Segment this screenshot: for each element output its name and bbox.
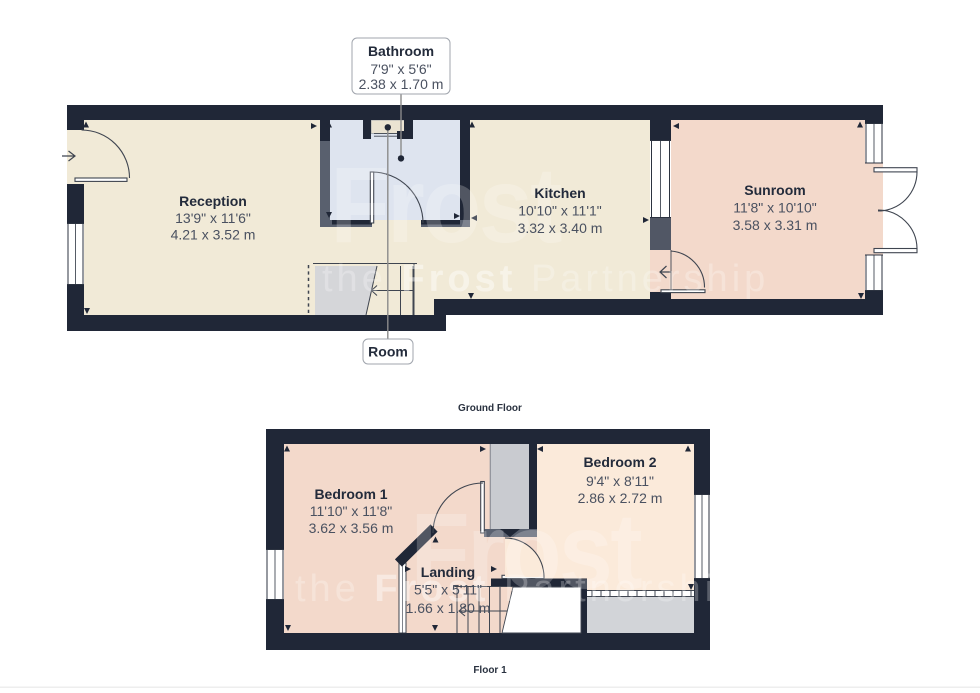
- svg-text:Kitchen: Kitchen: [534, 185, 585, 201]
- svg-text:1.66 x 1.80 m: 1.66 x 1.80 m: [406, 600, 491, 616]
- svg-text:4.21 x 3.52 m: 4.21 x 3.52 m: [171, 227, 256, 243]
- svg-text:7'9" x 5'6": 7'9" x 5'6": [370, 61, 431, 77]
- svg-text:Floor 1: Floor 1: [473, 665, 507, 676]
- svg-text:11'10" x 11'8": 11'10" x 11'8": [310, 503, 393, 519]
- svg-text:Bathroom: Bathroom: [368, 43, 434, 59]
- svg-text:5'5" x 5'11": 5'5" x 5'11": [414, 582, 482, 598]
- svg-text:Landing: Landing: [421, 564, 475, 580]
- svg-text:2.86 x 2.72 m: 2.86 x 2.72 m: [578, 490, 663, 506]
- svg-text:Bedroom 1: Bedroom 1: [314, 486, 387, 502]
- svg-text:9'4" x 8'11": 9'4" x 8'11": [586, 473, 654, 489]
- svg-text:11'8" x 10'10": 11'8" x 10'10": [733, 200, 817, 216]
- svg-text:3.58 x 3.31 m: 3.58 x 3.31 m: [733, 217, 818, 233]
- svg-text:Room: Room: [368, 344, 408, 360]
- svg-text:Sunroom: Sunroom: [744, 182, 805, 198]
- svg-text:3.32 x 3.40 m: 3.32 x 3.40 m: [518, 220, 603, 236]
- svg-text:Bedroom 2: Bedroom 2: [583, 454, 656, 470]
- svg-text:Ground Floor: Ground Floor: [458, 403, 522, 414]
- svg-text:Reception: Reception: [179, 193, 247, 209]
- svg-text:3.62 x 3.56 m: 3.62 x 3.56 m: [309, 520, 394, 536]
- svg-text:the Frost Partnership: the Frost Partnership: [295, 568, 742, 610]
- svg-text:10'10" x 11'1": 10'10" x 11'1": [518, 203, 602, 219]
- svg-text:2.38 x 1.70 m: 2.38 x 1.70 m: [359, 76, 444, 92]
- svg-text:13'9" x 11'6": 13'9" x 11'6": [175, 210, 251, 226]
- svg-text:the Frost Partnership: the Frost Partnership: [322, 258, 769, 300]
